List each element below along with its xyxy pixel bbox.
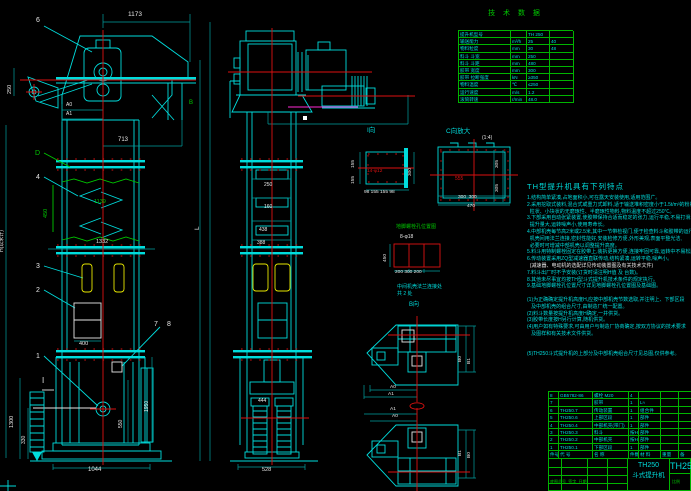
table-cell — [679, 392, 691, 399]
table-cell: TH250.6 — [559, 414, 593, 421]
table-cell: 部件 — [639, 444, 661, 451]
table-cell: m/s — [511, 89, 527, 96]
table-cell — [661, 436, 679, 443]
si-bottom-dims: 98 155 155 98 — [364, 191, 395, 196]
table-cell: 1 — [549, 444, 559, 451]
table-cell: 传动装置 — [593, 407, 629, 414]
table-cell: 1 — [629, 444, 639, 451]
table-cell — [679, 422, 691, 429]
si-155b: 155 — [352, 176, 357, 184]
dv1-A1: A1 — [388, 393, 394, 398]
table-cell — [679, 414, 691, 421]
title-block-divider — [670, 473, 691, 474]
table-cell: TH250.3 — [559, 429, 593, 436]
table-cell: kN — [511, 74, 527, 81]
dim-A0: A0 — [66, 103, 72, 108]
table-cell: 提升机型号 — [459, 31, 511, 38]
anchor-note2: 共 2 处 — [397, 292, 413, 297]
dim-160: 160 — [264, 205, 272, 210]
table-cell: 25 — [527, 38, 550, 45]
label-6: 6 — [36, 17, 40, 24]
drawing-name: 斗式提升机 — [628, 471, 669, 480]
features-lines: 1.结构简单紧凑,占地面积小,可在露天安装使用,适用范围广。2.采用挖取式装料,… — [527, 195, 691, 358]
dv2-B0: B0 — [468, 452, 473, 458]
si-300: 300 — [409, 168, 414, 176]
note-line — [527, 290, 691, 297]
table-cell: 1 — [629, 399, 639, 406]
title-block-signoff-grid — [549, 459, 627, 491]
table-cell — [679, 444, 691, 451]
table-cell — [661, 414, 679, 421]
tech-data-table: 技 术 数 据 提升机型号TH 250输送能力m³/h2540物料粒度mm304… — [458, 8, 573, 92]
anchor-note1: 中间机壳法兰连接处 — [397, 285, 442, 290]
si-155a: 155 — [352, 160, 357, 168]
dim-L: L — [195, 226, 202, 230]
table-cell — [661, 407, 679, 414]
table-cell: 中部机壳(带门) — [593, 422, 629, 429]
table-cell — [679, 399, 691, 406]
table-cell: 料斗 — [593, 429, 629, 436]
table-cell: 30 — [527, 45, 550, 52]
table-cell: 1 — [629, 422, 639, 429]
sc-305a: 305 — [496, 160, 501, 168]
note-line: 7.料斗出厂时不予安装(订货时请注明H值 及 台数)。 — [527, 270, 691, 277]
table-cell — [511, 31, 527, 38]
dv1-A0: A0 — [390, 386, 396, 391]
table-cell: 胶带 — [593, 399, 629, 406]
title-block-name-cell: TH250 斗式提升机 — [627, 459, 669, 491]
table-cell: 运行速度 — [459, 89, 511, 96]
table-cell: 7 — [549, 399, 559, 406]
si-bolt-note: 14-φ12 — [367, 170, 382, 175]
table-cell — [661, 392, 679, 399]
dim-1173: 1173 — [128, 12, 142, 19]
note-line: 9.基础地脚螺栓孔位置尺寸详见地脚螺栓孔位置图及基础图。 — [527, 283, 691, 290]
dim-713: 713 — [118, 137, 128, 143]
table-cell — [679, 407, 691, 414]
table-cell: r/min — [511, 96, 527, 103]
title-block: TH250 斗式提升机 TH250 — [548, 458, 691, 491]
note-line: 1.结构简单紧凑,占地面积小,可在露天安装使用,适用范围广。 — [527, 195, 691, 202]
view-C-label: C向放大 — [446, 129, 470, 136]
dim-528: 528 — [262, 468, 271, 474]
drawing-number: TH250 — [670, 459, 691, 473]
table-cell — [550, 67, 574, 74]
table-cell — [550, 31, 574, 38]
drawing-model: TH250 — [628, 461, 669, 471]
label-3: 3 — [36, 263, 40, 270]
sc-470: 470 — [467, 205, 475, 210]
note-line: 6.传动装置采用ZQ型减速器直联传动,结构紧凑,运转平稳,噪声小。 — [527, 256, 691, 263]
table-cell: 螺栓 M20 — [593, 392, 629, 399]
table-cell: 300 — [527, 67, 550, 74]
table-cell: L≈ — [639, 399, 661, 406]
view-C-scale: (1:4) — [482, 136, 492, 141]
dv2-A0: A0 — [392, 415, 398, 420]
dv1-B1: B1 — [468, 358, 473, 364]
table-cell: TH250.4 — [559, 422, 593, 429]
anchor-bolts: 8-φ18 — [400, 235, 413, 240]
dim-H-total: H(以米计) — [0, 230, 5, 252]
table-cell: TH250.1 — [559, 444, 593, 451]
table-cell: 480 — [527, 60, 550, 67]
dv2-B1: B1 — [459, 450, 464, 456]
table-cell: 2 — [549, 436, 559, 443]
table-cell: 料斗 斗距 — [459, 60, 511, 67]
table-cell: 物料温度 — [459, 81, 511, 88]
table-cell — [661, 399, 679, 406]
note-line: 及图样和有关技术文件供货。 — [527, 331, 691, 338]
sc-bottom-dims: 300 300 — [458, 196, 477, 201]
table-cell: mm — [511, 45, 527, 52]
table-cell: 3 — [549, 429, 559, 436]
table-cell: 250 — [527, 53, 550, 60]
note-line: 提升量大,运转噪声小,使用寿命长。 — [527, 222, 691, 229]
table-cell: 6 — [549, 407, 559, 414]
dv1-B0: B0 — [459, 356, 464, 362]
dim-330: 330 — [22, 436, 27, 444]
section-I-mark: I — [42, 377, 44, 385]
dim-1950: 1950 — [145, 401, 150, 412]
note-line: (5)TH250斗式提升机的上部分及中部机壳组合尺寸见总图,仅供参考。 — [527, 351, 691, 358]
dim-250-left: 250 — [8, 85, 14, 94]
table-cell — [550, 60, 574, 67]
table-cell — [679, 436, 691, 443]
table-cell: 部件 — [639, 414, 661, 421]
table-cell — [550, 74, 574, 81]
dim-400: 400 — [79, 342, 88, 348]
table-cell — [550, 53, 574, 60]
table-cell: 按H — [629, 436, 639, 443]
table-cell: 下部区段 — [593, 444, 629, 451]
table-cell: 胶带 拉断强度 — [459, 74, 511, 81]
table-cell: 部件 — [639, 436, 661, 443]
features-title: TH型提升机具有下列特点 — [527, 181, 691, 195]
note-line: (4)用户如有特殊要求,可由用户与制造厂协商确定,按双方协议的技术要求 — [527, 324, 691, 331]
table-cell: ℃ — [511, 81, 527, 88]
table-cell: 4 — [629, 392, 639, 399]
table-cell: mm — [511, 67, 527, 74]
title-block-number-cell: TH250 — [669, 459, 691, 491]
label-7: 7 — [154, 321, 158, 328]
dim-450: 450 — [44, 209, 50, 218]
table-cell: 1 — [629, 407, 639, 414]
table-cell: ≤250 — [527, 81, 550, 88]
table-cell — [550, 96, 574, 103]
dim-A1: A1 — [66, 112, 72, 117]
note-line: 及中部机壳的组合尺寸,由制造厂统一配置。 — [527, 304, 691, 311]
table-cell: mm — [511, 60, 527, 67]
table-cell: ≥350 — [527, 74, 550, 81]
table-cell — [639, 392, 661, 399]
table-cell: 40 — [550, 38, 574, 45]
anchor-title: 地脚螺栓孔位置图 — [396, 225, 436, 230]
table-cell: 物料粒度 — [459, 45, 511, 52]
note-line: 2.采用挖取式装料,混合式或重力式卸料,适于输送堆积密度小于1.5t/m³的粉状… — [527, 202, 691, 209]
table-cell — [550, 89, 574, 96]
label-D: D — [35, 150, 40, 157]
table-cell — [661, 422, 679, 429]
dim-1300: 1300 — [10, 416, 16, 428]
sc-555: 555 — [455, 177, 463, 182]
label-4: 4 — [36, 174, 40, 181]
table-cell: 上部区段 — [593, 414, 629, 421]
table-cell — [550, 81, 574, 88]
note-line: (1)为正确确定提升机高度H,应按中部机壳节数选取,并注明上、下部区段 — [527, 297, 691, 304]
table-cell: 1.2 — [527, 89, 550, 96]
table-cell: 8 — [549, 392, 559, 399]
label-B: B — [189, 100, 193, 106]
features-notes: TH型提升机具有下列特点 1.结构简单紧凑,占地面积小,可在露天安装使用,适用范… — [527, 181, 691, 400]
cad-sheet: 11736250BA0A1713D44501139133232400781I13… — [0, 0, 691, 491]
table-cell: 48 — [550, 45, 574, 52]
table-cell: 按H — [629, 429, 639, 436]
tech-table-title: 技 术 数 据 — [458, 8, 573, 19]
dim-444: 444 — [258, 399, 266, 404]
view-B-label: B向 — [409, 302, 419, 308]
note-line: 机壳间用法兰连接,密封性能好,安装检修方便,外形美观,表面平整光洁, — [527, 236, 691, 243]
bom-table: 8GB5782-86螺栓 M2047胶带1L≈6TH250.7传动装置1组合件5… — [548, 391, 691, 459]
note-line: 4.中部机壳每节高2米或2.5米,其中一节带检视门,便于检查料斗和胶带的运行, — [527, 229, 691, 236]
table-cell — [661, 429, 679, 436]
table-cell: 滚筒转速 — [459, 96, 511, 103]
dim-1044: 1044 — [88, 467, 101, 473]
tech-table-grid: 提升机型号TH 250输送能力m³/h2540物料粒度mm3048料斗 斗宽mm… — [458, 30, 573, 103]
note-line: (减速器、电动机的选配详见传动装置图及有关技术文件) — [527, 263, 691, 270]
table-cell: 5 — [549, 414, 559, 421]
label-8: 8 — [167, 321, 171, 328]
table-cell: 4 — [549, 422, 559, 429]
dim-1139: 1139 — [94, 200, 106, 206]
sc-305b: 305 — [496, 184, 501, 192]
table-cell — [661, 444, 679, 451]
anchor-bottom-dims: 200 300 200 — [395, 271, 422, 276]
anchor-450: 450 — [384, 254, 389, 262]
table-cell: 料斗 斗宽 — [459, 53, 511, 60]
table-cell: 胶带 宽度 — [459, 67, 511, 74]
table-cell: 输送能力 — [459, 38, 511, 45]
label-2: 2 — [36, 287, 40, 294]
dim-1332: 1332 — [96, 240, 108, 246]
note-line — [527, 338, 691, 345]
dim-550: 550 — [119, 420, 124, 428]
table-cell: 部件 — [639, 429, 661, 436]
table-cell: TH 250 — [527, 31, 550, 38]
table-cell: mm — [511, 53, 527, 60]
table-cell: 48.0 — [527, 96, 550, 103]
dim-388: 388 — [257, 241, 265, 246]
table-cell: 部件 — [639, 422, 661, 429]
table-cell: 中部机壳 — [593, 436, 629, 443]
dim-438: 438 — [259, 228, 267, 233]
table-cell — [679, 429, 691, 436]
table-cell: GB5782-86 — [559, 392, 593, 399]
table-cell: TH250.2 — [559, 436, 593, 443]
label-1: 1 — [36, 353, 40, 360]
table-cell: 组合件 — [639, 407, 661, 414]
table-cell: m³/h — [511, 38, 527, 45]
view-I-label: I向 — [367, 128, 375, 135]
dim-250-side: 250 — [264, 183, 272, 188]
table-cell: 1 — [629, 414, 639, 421]
table-cell: TH250.7 — [559, 407, 593, 414]
table-cell — [559, 399, 593, 406]
dv2-A1: A1 — [390, 408, 396, 413]
